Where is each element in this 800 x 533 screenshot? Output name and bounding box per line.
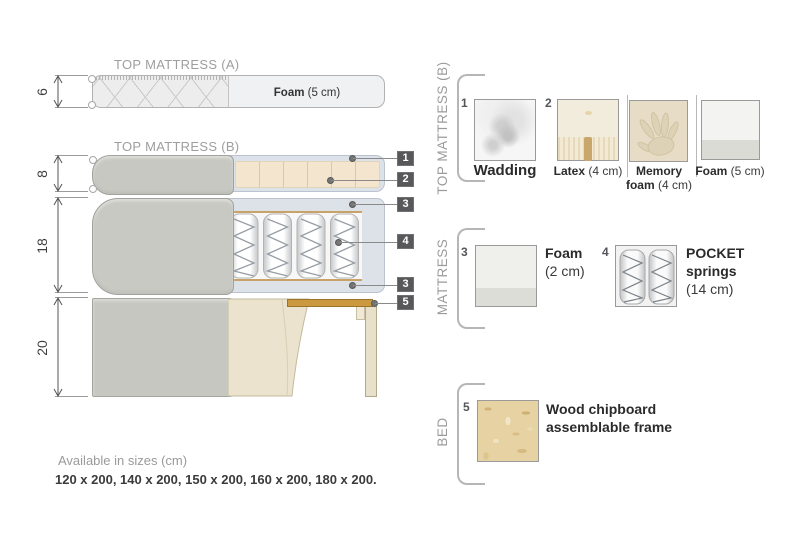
pocket-springs-image [615, 245, 677, 307]
dimension-arrow [52, 75, 64, 108]
available-sizes-title: Available in sizes (cm) [58, 453, 187, 468]
latex-texture-notch [584, 137, 592, 161]
pocket-springs-cross-section [229, 213, 360, 279]
bed-fabric-drape [228, 298, 314, 397]
top-mattress-a-title: TOP MATTRESS (A) [114, 57, 239, 72]
section-label-bed: BED [435, 402, 453, 462]
mattress-fabric-cover [92, 198, 234, 295]
callout-label-5: 5 [397, 295, 414, 310]
pocket-spring-zone [229, 211, 362, 281]
dimension-arrow [52, 197, 64, 293]
callout-label-1: 1 [397, 151, 414, 166]
dimension-value-20: 20 [34, 336, 50, 360]
foam-layer-label: Foam (5 cm) [228, 76, 385, 108]
legend-num-1: 1 [461, 96, 468, 110]
available-sizes-list: 120 x 200, 140 x 200, 150 x 200, 160 x 2… [55, 472, 377, 487]
wood-chipboard-plank [287, 299, 373, 307]
legend-num-2: 2 [545, 96, 552, 110]
foam-2cm-image [475, 245, 537, 307]
section-label-top-mattress-b: TOP MATTRESS (B) [435, 58, 453, 198]
latex-image [557, 99, 619, 161]
dimension-value-8: 8 [34, 166, 50, 182]
callout-line-3-bottom [353, 285, 397, 286]
callout-label-3-top: 3 [397, 197, 414, 212]
foam-blocks-layer [235, 161, 380, 188]
callout-label-3-bottom: 3 [397, 277, 414, 292]
section-label-mattress: MATTRESS [435, 227, 453, 327]
callout-line-3-top [353, 204, 397, 205]
top-mattress-b-fabric-cover [92, 155, 234, 195]
callout-line-2 [331, 180, 397, 181]
foam-5cm-image [701, 100, 760, 160]
wood-chipboard-label: Wood chipboard assemblable frame [546, 400, 672, 436]
foam-2cm-label: Foam (2 cm) [545, 244, 585, 280]
top-mattress-b-wadding-shell [228, 155, 385, 192]
bed-frame-leg [365, 305, 377, 397]
bed-fabric-cover [92, 298, 232, 397]
bed-frame-corner-block [356, 306, 365, 320]
callout-line-4 [339, 242, 397, 243]
legend-num-5: 5 [463, 400, 470, 414]
top-mattress-b-title: TOP MATTRESS (B) [114, 139, 239, 154]
piping-detail [88, 75, 96, 83]
wood-chipboard-image [477, 400, 539, 462]
dimension-arrow [52, 297, 64, 397]
callout-line-5 [375, 303, 397, 304]
latex-texture-spot [585, 111, 592, 115]
legend-num-3: 3 [461, 245, 468, 259]
wadding-image [474, 99, 536, 161]
callout-label-2: 2 [397, 172, 414, 187]
quilted-wadding-layer [93, 76, 229, 108]
mattress-construction-infographic: TOP MATTRESS (A) TOP MATTRESS (B) 6 Foam… [0, 0, 800, 533]
dimension-value-18: 18 [34, 234, 50, 258]
callout-label-4: 4 [397, 234, 414, 249]
pocket-springs-label: POCKET springs (14 cm) [686, 244, 744, 298]
top-mattress-a-body: Foam (5 cm) [92, 75, 385, 108]
foam-5cm-label: Foam (5 cm) [685, 164, 775, 178]
dimension-arrow [52, 155, 64, 192]
callout-line-1 [353, 158, 397, 159]
piping-detail [88, 101, 96, 109]
piping-detail [89, 156, 97, 164]
dimension-value-6: 6 [34, 84, 50, 100]
memory-foam-image [629, 100, 688, 162]
quilt-ruffle-edge [93, 76, 228, 80]
piping-detail [89, 185, 97, 193]
legend-num-4: 4 [602, 245, 609, 259]
